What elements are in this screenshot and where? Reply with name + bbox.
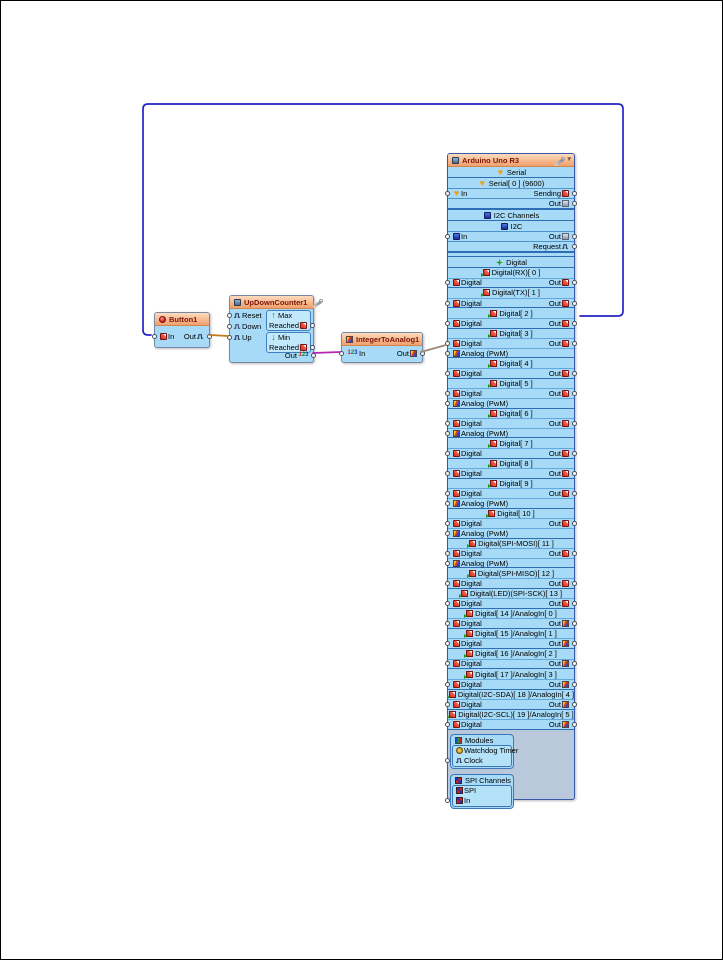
digital-pin-label: Digital[ 16 ]/AnalogIn[ 2 ] xyxy=(475,649,557,658)
digital-pin-icon xyxy=(449,711,456,718)
i2c-icon xyxy=(484,212,491,219)
arduino-header[interactable]: Arduino Uno R3 ▾ xyxy=(448,154,574,167)
converter-out-label: Out xyxy=(397,349,409,358)
digital-pin-block-4: Digital[ 4 ]DigitalOut xyxy=(448,358,574,378)
digital-pin-title-6: Digital[ 6 ] xyxy=(448,409,574,419)
down-label: Down xyxy=(242,322,261,331)
digital-pin-row-2: DigitalOut xyxy=(448,318,574,328)
digital-icon xyxy=(562,580,569,587)
digital-pin-label: Digital[ 4 ] xyxy=(499,359,532,368)
digital-icon xyxy=(453,721,460,728)
digital-pin-block-6: Digital[ 6 ]DigitalOutAnalog (PwM) xyxy=(448,409,574,439)
spi-channels-label: SPI Channels xyxy=(465,776,511,785)
digital-out-pin-0[interactable] xyxy=(572,280,577,285)
digital-icon xyxy=(562,320,569,327)
digital-out-pin-8[interactable] xyxy=(572,471,577,476)
digital-in-pin-14[interactable] xyxy=(445,621,450,626)
digital-in-pin-19[interactable] xyxy=(445,722,450,727)
arrow-up-icon: ↑ xyxy=(270,312,277,319)
integertoanalog1-header[interactable]: IntegerToAnalog1 xyxy=(342,333,422,346)
digital-in-pin-9[interactable] xyxy=(445,491,450,496)
i2c-icon xyxy=(453,233,460,240)
digital-in-label: Digital xyxy=(461,469,482,478)
digital-out-label: Out xyxy=(549,720,561,729)
digital-pin-block-15: Digital[ 15 ]/AnalogIn[ 1 ]DigitalOut xyxy=(448,629,574,649)
button1-header[interactable]: Button1 xyxy=(155,313,209,326)
digital-pin-block-16: Digital[ 16 ]/AnalogIn[ 2 ]DigitalOut xyxy=(448,649,574,669)
digital-out-pin-11[interactable] xyxy=(572,551,577,556)
digital-pin-title-10: Digital[ 10 ] xyxy=(448,509,574,519)
pwm-in-pin-5[interactable] xyxy=(445,401,450,406)
i2c-request-pin[interactable] xyxy=(572,244,577,249)
wire-button-out-to-counter-up[interactable] xyxy=(210,335,228,336)
digital-out-label: Out xyxy=(549,369,561,378)
digital-out-pin-17[interactable] xyxy=(572,682,577,687)
i2c-section: I2C Channels I2C In Out Request xyxy=(448,210,574,253)
analog-icon xyxy=(562,721,569,728)
spi-box: SPI In xyxy=(452,785,512,807)
button1-in-pin[interactable] xyxy=(152,334,157,339)
arduino-base: Modules Watchdog Timer Clock xyxy=(448,730,574,809)
digital-in-label: Digital xyxy=(461,419,482,428)
digital-icon xyxy=(453,370,460,377)
button-icon xyxy=(159,316,166,323)
pwm-in-pin-10[interactable] xyxy=(445,531,450,536)
digital-pin-block-14: Digital[ 14 ]/AnalogIn[ 0 ]DigitalOut xyxy=(448,609,574,629)
digital-group-label: Digital xyxy=(506,258,527,267)
analog-icon xyxy=(562,620,569,627)
digital-pin-row-0: DigitalOut xyxy=(448,278,574,288)
digital-icon xyxy=(453,300,460,307)
wire-converter-out-to-arduino-pwm[interactable] xyxy=(421,345,446,352)
digital-icon xyxy=(562,520,569,527)
digital-pin-label: Digital[ 9 ] xyxy=(499,479,532,488)
serial-channel-label: Serial[ 0 ] (9600) xyxy=(489,179,544,188)
serial-in-label: In xyxy=(461,189,467,198)
pwm-label: Analog (PwM) xyxy=(461,499,508,508)
digital-pin-row-18: DigitalOut xyxy=(448,699,574,709)
pwm-label: Analog (PwM) xyxy=(461,529,508,538)
digital-pin-title-3: Digital[ 3 ] xyxy=(448,329,574,339)
digital-out-label: Out xyxy=(549,579,561,588)
digital-in-pin-18[interactable] xyxy=(445,702,450,707)
serial-channel-title: ♥ Serial[ 0 ] (9600) xyxy=(448,178,574,189)
digital-pin-title-14: Digital[ 14 ]/AnalogIn[ 0 ] xyxy=(448,609,574,619)
serial-icon: ♥ xyxy=(479,180,486,187)
button1-in-label: In xyxy=(168,332,174,341)
digital-pin-title-9: Digital[ 9 ] xyxy=(448,479,574,489)
digital-pin-icon xyxy=(461,590,468,597)
spi-label: SPI xyxy=(464,786,476,795)
min-reached-pin[interactable] xyxy=(310,345,315,350)
digital-pin-row-8: DigitalOut xyxy=(448,468,574,478)
digital-out-pin-12[interactable] xyxy=(572,581,577,586)
digital-pin-block-2: Digital[ 2 ]DigitalOut xyxy=(448,308,574,328)
digital-icon xyxy=(453,580,460,587)
digital-out-pin-6[interactable] xyxy=(572,421,577,426)
digital-pin-row-17: DigitalOut xyxy=(448,679,574,689)
analog-icon xyxy=(453,350,460,357)
digital-out-pin-9[interactable] xyxy=(572,491,577,496)
digital-pin-label: Digital[ 17 ]/AnalogIn[ 3 ] xyxy=(475,670,557,679)
digital-icon xyxy=(562,490,569,497)
serial-icon: ♥ xyxy=(453,190,460,197)
pwm-in-pin-11[interactable] xyxy=(445,561,450,566)
i2c-channel-label: I2C xyxy=(511,222,523,231)
digital-out-label: Out xyxy=(549,700,561,709)
i2c-in-row: In Out xyxy=(448,232,574,241)
digital-in-pin-16[interactable] xyxy=(445,661,450,666)
clock-label: Clock xyxy=(464,756,483,765)
component-arduino-uno-r3[interactable]: Arduino Uno R3 ▾ ♥ Serial ♥ Serial[ 0 ] … xyxy=(447,153,575,800)
digital-out-pin-13[interactable] xyxy=(572,601,577,606)
digital-pin-block-12: Digital(SPI-MISO)[ 12 ]DigitalOut xyxy=(448,568,574,588)
digital-icon xyxy=(453,279,460,286)
digital-pin-icon xyxy=(490,310,497,317)
digital-pin-icon xyxy=(466,650,473,657)
digital-pin-icon xyxy=(490,480,497,487)
digital-in-pin-5[interactable] xyxy=(445,391,450,396)
digital-pin-label: Digital(LED)(SPI-SCK)[ 13 ] xyxy=(470,589,562,598)
digital-in-label: Digital xyxy=(461,369,482,378)
down-pin-row: Down xyxy=(230,321,266,332)
digital-pin-row-15: DigitalOut xyxy=(448,638,574,648)
digital-pin-label: Digital(RX)[ 0 ] xyxy=(492,268,541,277)
digital-out-pin-2[interactable] xyxy=(572,321,577,326)
digital-pin-title-18: Digital(I2C-SDA)[ 18 ]/AnalogIn[ 4 ] xyxy=(448,690,574,700)
digital-icon xyxy=(453,681,460,688)
i2c-group-label: I2C Channels xyxy=(494,211,539,220)
wire-counter-out-to-converter-in[interactable] xyxy=(313,352,340,353)
digital-icon xyxy=(453,320,460,327)
digital-pin-block-0: Digital(RX)[ 0 ]DigitalOut xyxy=(448,268,574,288)
digital-icon xyxy=(453,701,460,708)
digital-pin-block-11: Digital(SPI-MOSI)[ 11 ]DigitalOutAnalog … xyxy=(448,539,574,569)
digital-out-pin-1[interactable] xyxy=(572,301,577,306)
analog-icon xyxy=(562,701,569,708)
digital-out-pin-5[interactable] xyxy=(572,391,577,396)
digital-icon xyxy=(453,520,460,527)
modules-icon xyxy=(455,737,462,744)
component-button1[interactable]: Button1 In Out xyxy=(154,312,210,348)
digital-icon xyxy=(562,300,569,307)
digital-in-label: Digital xyxy=(461,639,482,648)
analog-icon xyxy=(453,560,460,567)
up-label: Up xyxy=(242,333,252,342)
digital-icon xyxy=(562,450,569,457)
serial-out-row: Out xyxy=(448,198,574,208)
serial-sending-pin[interactable] xyxy=(572,191,577,196)
digital-pin-block-1: Digital(TX)[ 1 ]DigitalOut xyxy=(448,288,574,308)
max-row: ↑ Max xyxy=(267,311,310,321)
digital-in-pin-12[interactable] xyxy=(445,581,450,586)
digital-out-label: Out xyxy=(549,449,561,458)
digital-pin-title-11: Digital(SPI-MOSI)[ 11 ] xyxy=(448,539,574,549)
digital-pin-label: Digital(SPI-MOSI)[ 11 ] xyxy=(478,539,554,548)
digital-pin-label: Digital[ 14 ]/AnalogIn[ 0 ] xyxy=(475,609,557,618)
digital-pin-row-7: DigitalOut xyxy=(448,448,574,458)
analog-icon xyxy=(562,640,569,647)
digital-in-label: Digital xyxy=(461,700,482,709)
button1-pin-row: In Out xyxy=(155,326,209,346)
digital-icon xyxy=(453,340,460,347)
button1-title: Button1 xyxy=(169,315,197,324)
clock-icon xyxy=(562,243,569,250)
button1-out-label: Out xyxy=(184,332,196,341)
digital-pin-label: Digital[ 2 ] xyxy=(499,309,532,318)
analog-icon xyxy=(453,500,460,507)
digital-icon xyxy=(453,450,460,457)
counter-out-row: Out 123 xyxy=(232,350,311,360)
pwm-in-pin-3[interactable] xyxy=(445,351,450,356)
digital-pin-block-5: Digital[ 5 ]DigitalOutAnalog (PwM) xyxy=(448,379,574,409)
serial-in-pin[interactable] xyxy=(445,191,450,196)
digital-out-label: Out xyxy=(549,489,561,498)
digital-out-label: Out xyxy=(549,339,561,348)
digital-pin-row-14: DigitalOut xyxy=(448,618,574,628)
serial-section: ♥ Serial ♥ Serial[ 0 ] (9600) ♥ In Sendi… xyxy=(448,167,574,210)
i2c-group-header: I2C Channels xyxy=(448,210,574,221)
digital-pin-title-4: Digital[ 4 ] xyxy=(448,358,574,368)
digital-in-label: Digital xyxy=(461,278,482,287)
wrench-icon[interactable] xyxy=(554,157,564,164)
digital-pin-icon xyxy=(466,671,473,678)
digital-icon xyxy=(562,420,569,427)
digital-in-label: Digital xyxy=(461,720,482,729)
serial-out-label: Out xyxy=(549,199,561,208)
analog-icon xyxy=(562,660,569,667)
digital-pin-block-18: Digital(I2C-SDA)[ 18 ]/AnalogIn[ 4 ]Digi… xyxy=(448,690,574,710)
component-integertoanalog1[interactable]: IntegerToAnalog1 123 In Out xyxy=(341,332,423,363)
digital-pin-icon xyxy=(488,510,495,517)
spi-row: SPI xyxy=(453,786,511,796)
digital-out-label: Out xyxy=(549,389,561,398)
spi-icon xyxy=(456,797,463,804)
updowncounter1-body: Reset Down Up ↑ Max xyxy=(230,309,313,362)
pwm-label: Analog (PwM) xyxy=(461,349,508,358)
digital-pwm-row-9: Analog (PwM) xyxy=(448,498,574,508)
digital-in-pin-15[interactable] xyxy=(445,641,450,646)
reset-pin-row: Reset xyxy=(230,310,266,321)
digital-icon xyxy=(160,333,167,340)
digital-in-pin-4[interactable] xyxy=(445,371,450,376)
digital-icon xyxy=(300,322,307,329)
integer-icon: 123 xyxy=(298,352,309,359)
clock-icon xyxy=(234,323,241,330)
digital-pin-title-16: Digital[ 16 ]/AnalogIn[ 2 ] xyxy=(448,649,574,659)
digital-pin-icon xyxy=(449,691,456,698)
digital-pin-label: Digital(SPI-MISO)[ 12 ] xyxy=(478,569,554,578)
digital-icon xyxy=(562,340,569,347)
i2c-in-pin[interactable] xyxy=(445,234,450,239)
digital-pin-icon xyxy=(490,380,497,387)
digital-pin-row-10: DigitalOut xyxy=(448,518,574,528)
digital-pin-title-13: Digital(LED)(SPI-SCK)[ 13 ] xyxy=(448,589,574,599)
digital-out-pin-14[interactable] xyxy=(572,621,577,626)
digital-pin-icon xyxy=(483,269,490,276)
digital-pin-label: Digital[ 3 ] xyxy=(499,329,532,338)
digital-pin-title-19: Digital(I2C-SCL)[ 19 ]/AnalogIn[ 5 ] xyxy=(448,710,574,720)
digital-in-pin-17[interactable] xyxy=(445,682,450,687)
serial-out-pin[interactable] xyxy=(572,201,577,206)
spi-in-row: In xyxy=(453,796,511,806)
digital-out-label: Out xyxy=(549,419,561,428)
digital-pwm-row-3: Analog (PwM) xyxy=(448,348,574,358)
digital-icon xyxy=(453,660,460,667)
digital-in-pin-10[interactable] xyxy=(445,521,450,526)
digital-out-pin-7[interactable] xyxy=(572,451,577,456)
digital-out-pin-3[interactable] xyxy=(572,341,577,346)
wrench-icon[interactable] xyxy=(312,299,322,306)
digital-out-pin-16[interactable] xyxy=(572,661,577,666)
digital-pin-icon xyxy=(490,360,497,367)
digital-in-pin-1[interactable] xyxy=(445,301,450,306)
digital-pwm-row-6: Analog (PwM) xyxy=(448,428,574,438)
digital-in-pin-0[interactable] xyxy=(445,280,450,285)
digital-pins: Digital(RX)[ 0 ]DigitalOutDigital(TX)[ 1… xyxy=(448,268,574,730)
digital-pin-row-12: DigitalOut xyxy=(448,578,574,588)
digital-pin-icon xyxy=(466,610,473,617)
digital-out-pin-18[interactable] xyxy=(572,702,577,707)
digital-pin-block-10: Digital[ 10 ]DigitalOutAnalog (PwM) xyxy=(448,509,574,539)
digital-pin-row-4: DigitalOut xyxy=(448,368,574,378)
digital-pin-label: Digital[ 15 ]/AnalogIn[ 1 ] xyxy=(475,629,557,638)
digital-pin-block-13: Digital(LED)(SPI-SCK)[ 13 ]DigitalOut xyxy=(448,589,574,609)
max-reached-box: ↑ Max Reached xyxy=(266,310,311,331)
digital-pin-block-3: Digital[ 3 ]DigitalOutAnalog (PwM) xyxy=(448,329,574,359)
digital-icon xyxy=(453,600,460,607)
digital-out-label: Out xyxy=(549,278,561,287)
digital-out-label: Out xyxy=(549,680,561,689)
digital-pin-label: Digital[ 10 ] xyxy=(497,509,535,518)
i2c-out-label: Out xyxy=(549,232,561,241)
digital-icon xyxy=(453,470,460,477)
digital-pin-title-5: Digital[ 5 ] xyxy=(448,379,574,389)
digital-pin-title-17: Digital[ 17 ]/AnalogIn[ 3 ] xyxy=(448,669,574,679)
spi-icon xyxy=(456,787,463,794)
digital-pin-icon xyxy=(490,410,497,417)
spi-in-pin[interactable] xyxy=(445,798,450,803)
digital-out-pin-19[interactable] xyxy=(572,722,577,727)
serial-in-row: ♥ In Sending xyxy=(448,189,574,198)
down-pin[interactable] xyxy=(227,324,232,329)
digital-pin-row-16: DigitalOut xyxy=(448,659,574,669)
analog-icon xyxy=(410,350,417,357)
digital-pin-title-15: Digital[ 15 ]/AnalogIn[ 1 ] xyxy=(448,629,574,639)
digital-icon xyxy=(562,390,569,397)
component-updowncounter1[interactable]: UpDownCounter1 Reset Down Up xyxy=(229,295,314,363)
clock-icon xyxy=(234,312,241,319)
digital-pin-row-5: DigitalOut xyxy=(448,388,574,398)
digital-pin-icon xyxy=(469,570,476,577)
clock-row: Clock xyxy=(453,756,511,766)
i2c-out-pin[interactable] xyxy=(572,234,577,239)
max-reached-pin[interactable] xyxy=(310,323,315,328)
pwm-label: Analog (PwM) xyxy=(461,429,508,438)
digital-icon xyxy=(453,620,460,627)
i2c-icon xyxy=(501,223,508,230)
digital-group-header: Digital xyxy=(448,257,574,268)
digital-icon xyxy=(562,600,569,607)
spi-in-label: In xyxy=(464,796,470,805)
reset-pin[interactable] xyxy=(227,313,232,318)
digital-icon xyxy=(562,550,569,557)
digital-out-pin-10[interactable] xyxy=(572,521,577,526)
reset-label: Reset xyxy=(242,311,262,320)
design-canvas[interactable]: Button1 In Out UpDownCounter1 Reset xyxy=(0,0,723,960)
updowncounter1-header[interactable]: UpDownCounter1 xyxy=(230,296,313,309)
max-reached-row: Reached xyxy=(267,321,310,331)
updowncounter1-title: UpDownCounter1 xyxy=(244,298,307,307)
digital-pin-icon xyxy=(469,540,476,547)
chevron-down-icon[interactable]: ▾ xyxy=(567,154,571,166)
digital-pin-block-17: Digital[ 17 ]/AnalogIn[ 3 ]DigitalOut xyxy=(448,669,574,689)
digital-in-pin-8[interactable] xyxy=(445,471,450,476)
digital-in-label: Digital xyxy=(461,339,482,348)
digital-in-label: Digital xyxy=(461,579,482,588)
digital-pin-icon xyxy=(466,630,473,637)
pwm-label: Analog (PwM) xyxy=(461,559,508,568)
digital-in-pin-2[interactable] xyxy=(445,321,450,326)
watchdog-box: Watchdog Timer Clock xyxy=(452,745,512,767)
digital-in-pin-6[interactable] xyxy=(445,421,450,426)
digital-in-label: Digital xyxy=(461,449,482,458)
min-row: ↓ Min xyxy=(267,333,310,343)
digital-in-pin-7[interactable] xyxy=(445,451,450,456)
arrow-down-icon: ↓ xyxy=(270,334,277,341)
watchdog-label: Watchdog Timer xyxy=(464,746,518,755)
i2c-channel-title: I2C xyxy=(448,221,574,232)
analog-icon xyxy=(562,681,569,688)
i2c-request-label: Request xyxy=(533,242,561,251)
integer-icon: 123 xyxy=(347,350,358,357)
min-label: Min xyxy=(278,333,290,342)
arduino-board-icon xyxy=(452,157,459,164)
serial-group-header: ♥ Serial xyxy=(448,167,574,178)
digital-in-label: Digital xyxy=(461,389,482,398)
digital-icon xyxy=(453,420,460,427)
digital-out-pin-4[interactable] xyxy=(572,371,577,376)
clock-icon xyxy=(456,757,463,764)
digital-in-label: Digital xyxy=(461,619,482,628)
digital-pin-block-8: Digital[ 8 ]DigitalOut xyxy=(448,459,574,479)
wires-layer xyxy=(1,1,723,960)
digital-pin-label: Digital(I2C-SCL)[ 19 ]/AnalogIn[ 5 ] xyxy=(458,710,573,719)
digital-icon xyxy=(453,640,460,647)
digital-icon xyxy=(562,279,569,286)
clock-pin[interactable] xyxy=(445,758,450,763)
digital-in-pin-11[interactable] xyxy=(445,551,450,556)
digital-pin-title-12: Digital(SPI-MISO)[ 12 ] xyxy=(448,568,574,578)
pwm-in-pin-9[interactable] xyxy=(445,501,450,506)
digital-out-label: Out xyxy=(549,549,561,558)
spi-channels-box: SPI Channels SPI In xyxy=(450,774,514,809)
analog-icon xyxy=(453,530,460,537)
digital-pin-label: Digital(TX)[ 1 ] xyxy=(492,288,540,297)
digital-out-label: Out xyxy=(549,299,561,308)
digital-in-pin-13[interactable] xyxy=(445,601,450,606)
digital-out-pin-15[interactable] xyxy=(572,641,577,646)
pwm-in-pin-6[interactable] xyxy=(445,431,450,436)
digital-pin-icon xyxy=(490,460,497,467)
digital-out-label: Out xyxy=(549,639,561,648)
digital-icon xyxy=(453,490,460,497)
digital-pin-title-2: Digital[ 2 ] xyxy=(448,308,574,318)
digital-out-label: Out xyxy=(549,519,561,528)
digital-pin-row-13: DigitalOut xyxy=(448,598,574,608)
digital-pin-title-7: Digital[ 7 ] xyxy=(448,438,574,448)
arduino-title: Arduino Uno R3 xyxy=(462,156,519,165)
